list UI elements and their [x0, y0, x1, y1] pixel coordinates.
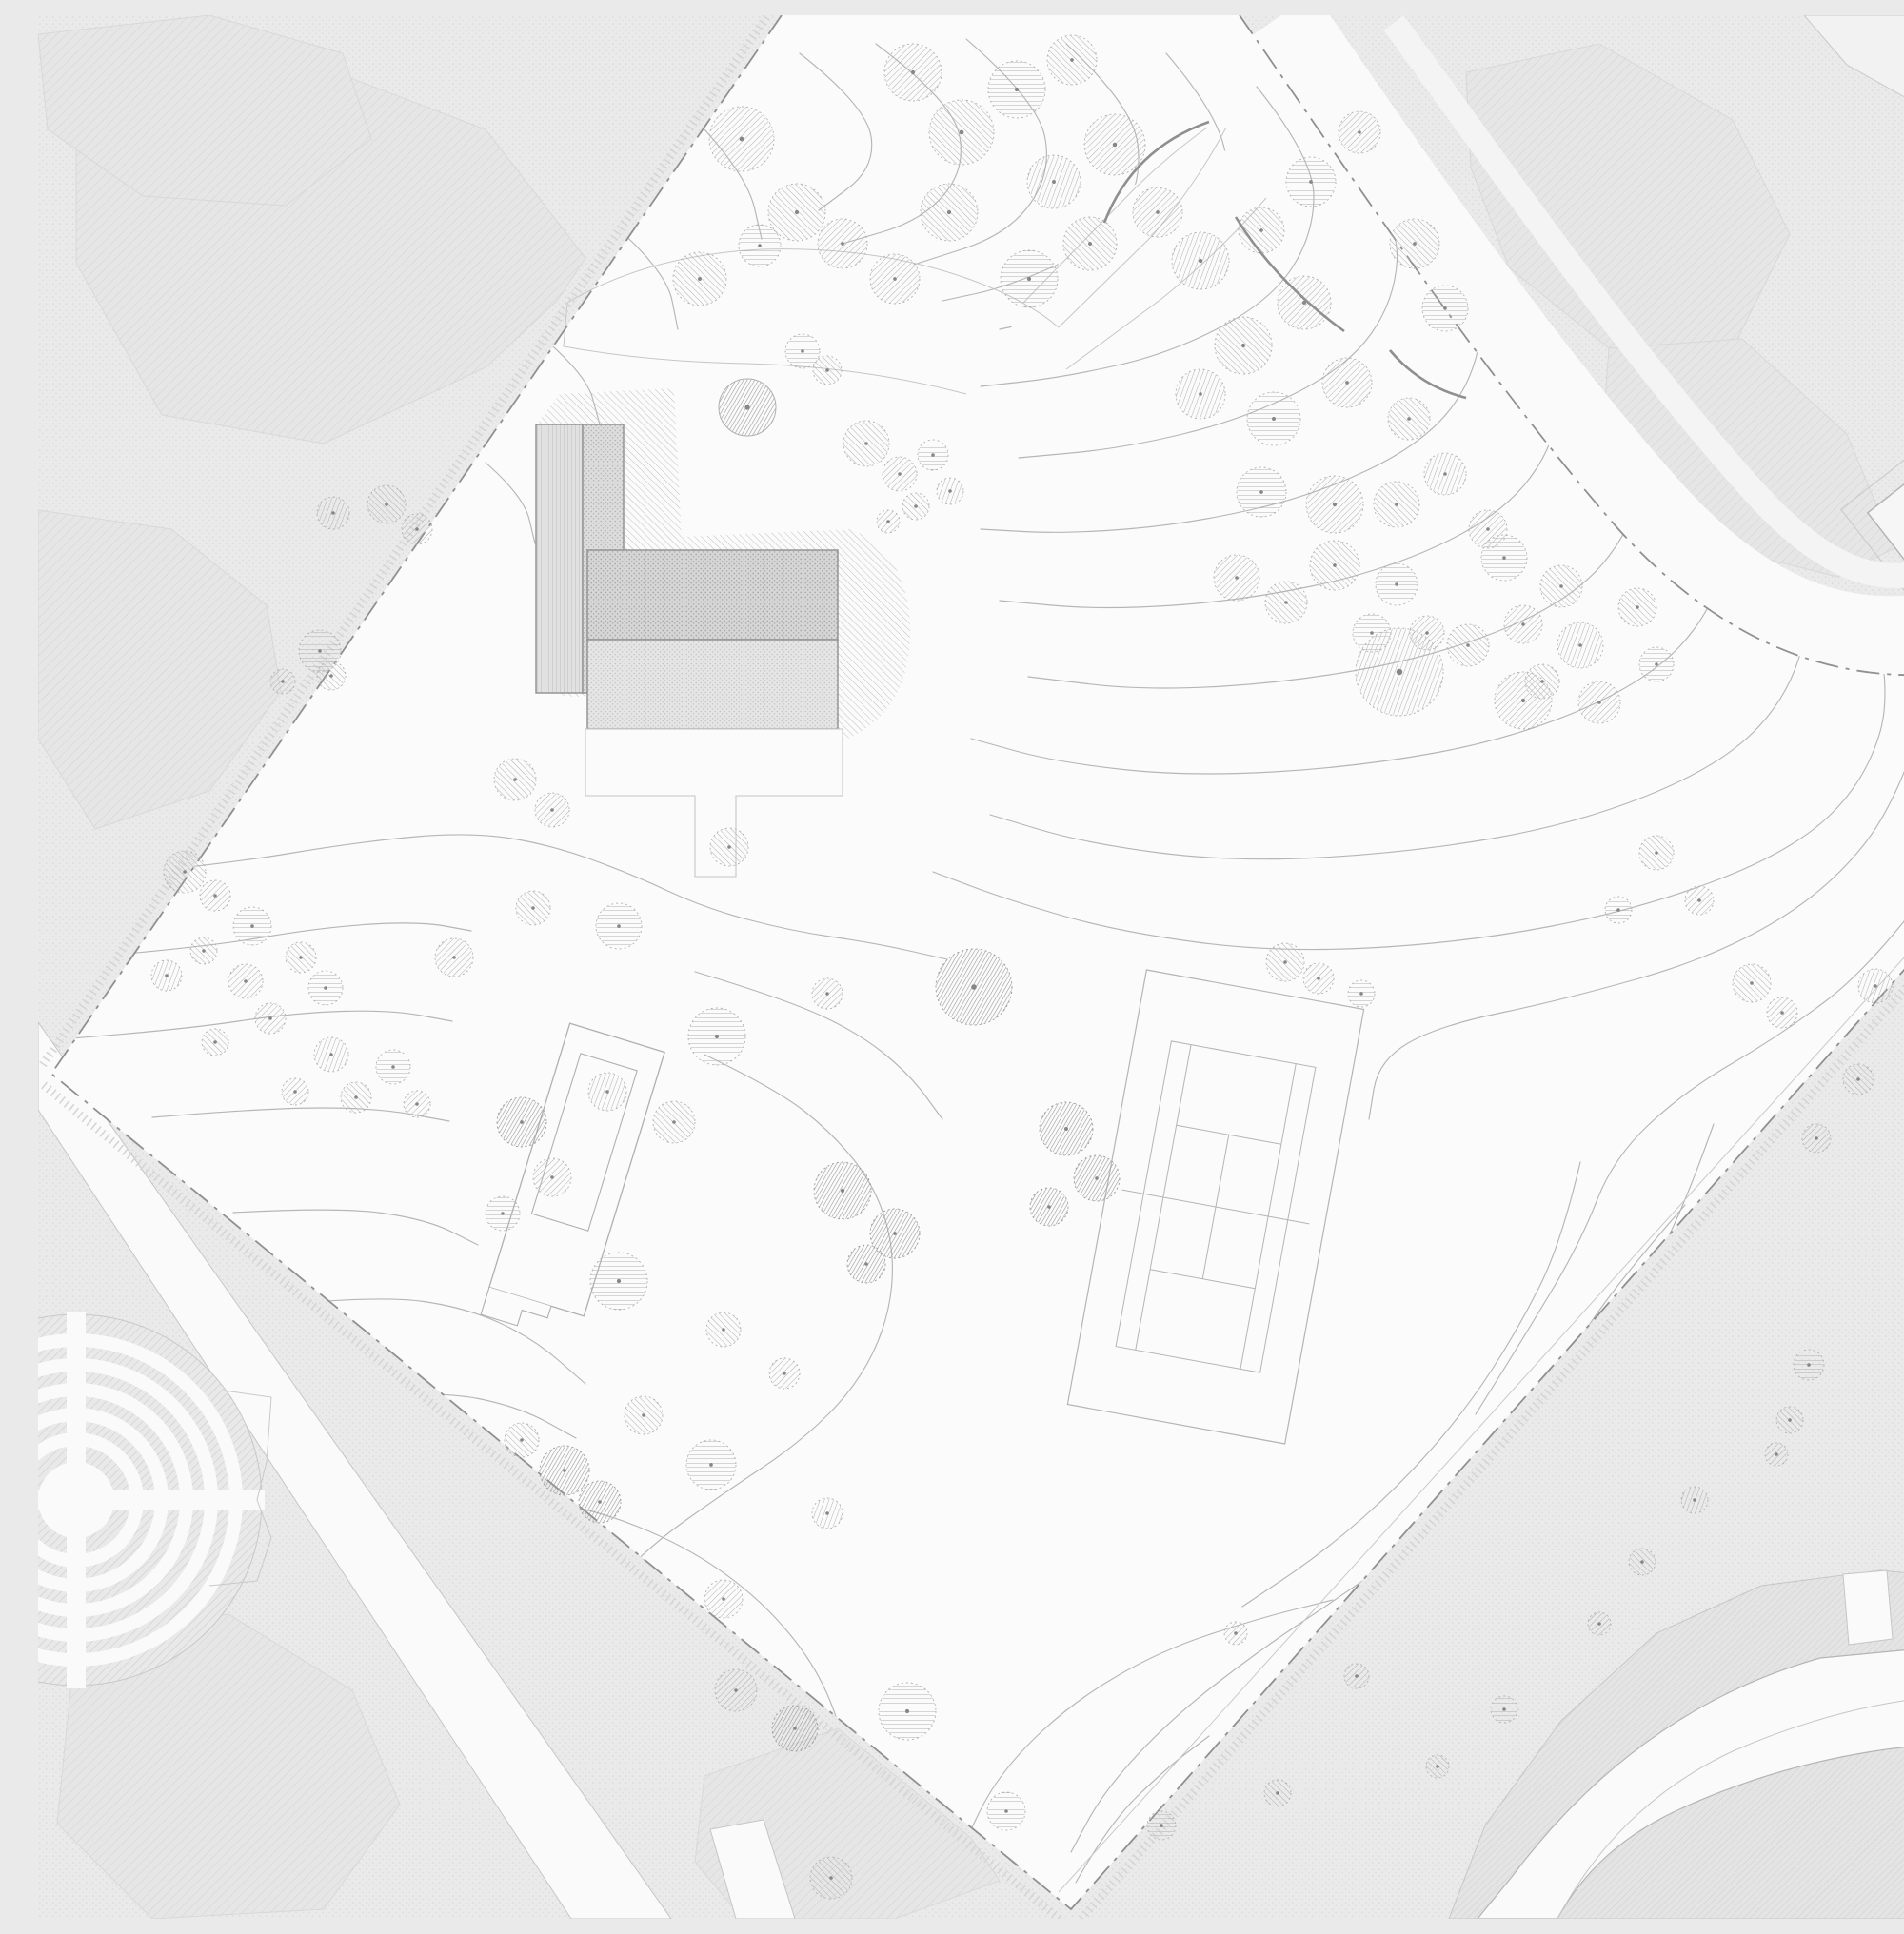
tree-trunk-dot	[165, 974, 169, 977]
tree	[588, 1073, 626, 1111]
tree	[739, 225, 781, 266]
tree-trunk-dot	[550, 808, 554, 812]
tree	[1685, 886, 1714, 915]
tree-trunk-dot	[1276, 1791, 1279, 1795]
tree-trunk-dot	[1425, 631, 1429, 635]
tree-trunk-dot	[452, 956, 456, 959]
tree-trunk-dot	[1333, 563, 1337, 567]
tree	[918, 440, 948, 470]
tree-trunk-dot	[1655, 662, 1658, 666]
tree	[505, 1423, 539, 1457]
tree-trunk-dot	[513, 778, 517, 781]
tree-trunk-dot	[864, 442, 868, 445]
tree-trunk-dot	[1004, 1809, 1008, 1813]
tree	[1858, 969, 1893, 1003]
tree	[1030, 1188, 1068, 1226]
tree-trunk-dot	[886, 520, 890, 523]
tree-trunk-dot	[1333, 503, 1337, 506]
tree-trunk-dot	[1358, 130, 1361, 134]
tree-trunk-dot	[1788, 1418, 1792, 1422]
tree-trunk-dot	[722, 1597, 725, 1601]
tree-trunk-dot	[1436, 1765, 1439, 1768]
tree-trunk-dot	[1015, 88, 1019, 91]
tree	[535, 793, 569, 827]
tree	[812, 1498, 843, 1529]
tree-trunk-dot	[293, 1090, 297, 1094]
tree-trunk-dot	[501, 1212, 505, 1215]
tree-trunk-dot	[520, 1438, 524, 1442]
tree	[1802, 1124, 1831, 1153]
tree-trunk-dot	[801, 349, 804, 353]
tree-trunk-dot	[1345, 381, 1349, 385]
tree-trunk-dot	[722, 1328, 725, 1332]
tree	[785, 334, 820, 368]
tree	[1047, 35, 1097, 85]
tree-trunk-dot	[1597, 1622, 1601, 1626]
tree-trunk-dot	[905, 1709, 909, 1713]
tree-trunk-dot	[1309, 180, 1313, 184]
tree	[579, 1481, 621, 1523]
tree	[813, 356, 842, 385]
tree	[317, 661, 346, 690]
tree	[1767, 997, 1797, 1028]
tree	[1639, 836, 1674, 870]
tree-trunk-dot	[213, 894, 217, 898]
tree-trunk-dot	[1027, 277, 1031, 281]
tree	[1376, 563, 1418, 605]
tree-trunk-dot	[1395, 503, 1398, 506]
tree	[1540, 565, 1582, 607]
tree-trunk-dot	[244, 979, 248, 983]
tree	[164, 851, 206, 893]
tree-trunk-dot	[893, 277, 897, 281]
tree-trunk-dot	[213, 1040, 217, 1044]
tree-trunk-dot	[250, 924, 254, 928]
tree	[1133, 187, 1182, 237]
plaza-circle-tree-trunk-dot	[744, 405, 749, 409]
tree	[282, 1078, 308, 1105]
tree	[1629, 1549, 1656, 1575]
tree-trunk-dot	[1156, 210, 1160, 214]
tree-trunk-dot	[1234, 1631, 1238, 1635]
tree	[987, 1792, 1025, 1830]
tree	[1776, 1407, 1803, 1433]
tree-trunk-dot	[698, 277, 702, 281]
tree-trunk-dot	[1052, 180, 1056, 184]
tree	[929, 100, 994, 165]
tree-trunk-dot	[1064, 1127, 1068, 1131]
tree	[202, 1029, 228, 1056]
tree-trunk-dot	[1697, 898, 1701, 902]
tree-trunk-dot	[520, 1120, 524, 1124]
tree-trunk-dot	[1521, 699, 1525, 702]
tree-trunk-dot	[841, 242, 844, 246]
tree	[1264, 1780, 1291, 1806]
tree-trunk-dot	[1502, 556, 1506, 560]
tree	[902, 493, 929, 520]
tree-trunk-dot	[825, 368, 829, 372]
tree-trunk-dot	[563, 1469, 566, 1472]
tree	[673, 252, 726, 306]
tree-trunk-dot	[1088, 242, 1092, 246]
tree	[937, 478, 963, 504]
tree	[1084, 114, 1145, 175]
tree-trunk-dot	[727, 845, 731, 849]
tree-trunk-dot	[931, 453, 935, 457]
tree-trunk-dot	[829, 1876, 833, 1880]
tree-trunk-dot	[354, 1095, 358, 1099]
tree-trunk-dot	[1597, 701, 1601, 704]
site-plan-figure	[38, 15, 1904, 1919]
tree	[486, 1196, 520, 1231]
tree	[1424, 453, 1466, 495]
tree-trunk-dot	[971, 984, 977, 990]
tree-trunk-dot	[1235, 576, 1239, 580]
building-wing-wide-upper	[587, 550, 838, 640]
tree-trunk-dot	[329, 674, 333, 678]
tree	[1618, 588, 1656, 626]
tree-trunk-dot	[1443, 306, 1447, 310]
tree-trunk-dot	[1413, 242, 1417, 246]
tree-trunk-dot	[1466, 643, 1470, 647]
tree-trunk-dot	[617, 1279, 621, 1283]
tree-trunk-dot	[672, 1120, 676, 1124]
tree-trunk-dot	[324, 986, 327, 990]
site-plan-canvas	[38, 15, 1904, 1919]
tree-trunk-dot	[1370, 631, 1374, 635]
tree-trunk-dot	[642, 1413, 645, 1417]
tree-trunk-dot	[1655, 851, 1658, 855]
tree	[1388, 398, 1430, 440]
tree-trunk-dot	[1407, 417, 1411, 421]
tree	[533, 1158, 571, 1196]
tree	[1310, 541, 1359, 590]
tree	[1344, 1664, 1369, 1688]
tree	[704, 1580, 743, 1618]
tree	[1215, 317, 1272, 374]
tree	[228, 964, 263, 998]
fan-entry	[1843, 1570, 1893, 1645]
tree	[686, 1440, 736, 1490]
tree	[818, 219, 867, 268]
tree-trunk-dot	[1359, 992, 1363, 996]
tree	[710, 828, 748, 866]
tree	[1074, 1155, 1120, 1201]
labyrinth-cross-vertical	[67, 1312, 86, 1688]
tree-trunk-dot	[1807, 1363, 1811, 1367]
tree	[1306, 476, 1363, 533]
tree-trunk-dot	[1578, 643, 1582, 647]
tree	[270, 669, 295, 694]
tree-trunk-dot	[318, 649, 322, 653]
tree-trunk-dot	[825, 1511, 829, 1515]
tree-trunk-dot	[758, 244, 762, 247]
tree-trunk-dot	[1640, 1560, 1644, 1564]
tree-trunk-dot	[825, 992, 829, 996]
tree	[1681, 1487, 1708, 1513]
tree	[341, 1082, 371, 1113]
tree-trunk-dot	[1047, 1205, 1051, 1209]
tree	[286, 942, 316, 973]
tree-trunk-dot	[617, 924, 621, 928]
tree-trunk-dot	[948, 489, 952, 493]
tree-trunk-dot	[1443, 472, 1447, 476]
tree	[1266, 943, 1304, 981]
tree	[1172, 232, 1229, 289]
tree-trunk-dot	[1856, 1077, 1860, 1081]
tree	[1733, 964, 1771, 1002]
tree	[404, 1091, 430, 1117]
tree	[1278, 276, 1331, 329]
tree-trunk-dot	[415, 527, 419, 531]
tree	[1588, 1612, 1611, 1635]
tree	[1348, 980, 1375, 1007]
tree	[768, 184, 825, 241]
tree	[988, 61, 1045, 118]
tree-trunk-dot	[1241, 344, 1245, 347]
tree-trunk-dot	[1815, 1136, 1818, 1140]
tree	[1176, 369, 1225, 419]
tree-trunk-dot	[550, 1175, 554, 1179]
tree	[1286, 157, 1336, 207]
tree	[151, 960, 182, 991]
tree-trunk-dot	[1272, 417, 1276, 421]
tree	[255, 1003, 286, 1034]
tree-trunk-dot	[1160, 1824, 1163, 1827]
tree-trunk-dot	[1259, 228, 1263, 232]
tree-trunk-dot	[183, 870, 187, 874]
tree	[1063, 217, 1117, 270]
building-wing-wide-lower	[587, 640, 838, 729]
tree	[497, 1097, 546, 1147]
tree-trunk-dot	[531, 906, 535, 910]
tree-trunk-dot	[1502, 1707, 1506, 1711]
tree-trunk-dot	[415, 1102, 419, 1106]
tree	[540, 1446, 589, 1495]
tree	[625, 1396, 663, 1434]
tree	[1265, 582, 1307, 623]
tree-trunk-dot	[793, 1727, 797, 1730]
tree-trunk-dot	[795, 210, 799, 214]
tree	[1247, 392, 1300, 445]
tree	[1027, 155, 1081, 208]
tree	[1224, 1622, 1247, 1645]
tree-trunk-dot	[281, 680, 285, 683]
tree-trunk-dot	[1355, 1674, 1359, 1678]
tree	[883, 457, 917, 491]
tree	[233, 907, 271, 945]
tree	[1147, 1811, 1176, 1840]
tree-trunk-dot	[331, 511, 335, 515]
tree-trunk-dot	[709, 1463, 713, 1467]
tree	[1040, 1102, 1093, 1155]
tree	[709, 107, 774, 171]
tree-trunk-dot	[898, 472, 902, 476]
tree	[308, 971, 343, 1005]
tree	[1557, 622, 1603, 668]
tree	[376, 1050, 410, 1084]
tree	[367, 485, 406, 523]
tree-trunk-dot	[740, 137, 744, 142]
tree-trunk-dot	[1750, 981, 1754, 985]
tree-trunk-dot	[841, 1189, 844, 1193]
tree-trunk-dot	[1540, 680, 1544, 683]
tree	[402, 514, 432, 544]
tree	[1447, 624, 1489, 666]
tree-trunk-dot	[947, 210, 951, 214]
tree	[1525, 664, 1559, 699]
building-wing-tall-left	[536, 424, 583, 693]
tree	[1339, 111, 1380, 153]
tree	[596, 903, 642, 949]
tree	[706, 1312, 741, 1347]
tree	[1843, 1064, 1874, 1095]
tree	[810, 1857, 852, 1899]
tree	[1390, 219, 1439, 268]
tree	[1001, 250, 1058, 307]
tree-trunk-dot	[1874, 984, 1877, 988]
tree-trunk-dot	[1113, 143, 1117, 147]
tree	[936, 949, 1012, 1025]
tree-trunk-dot	[715, 1035, 719, 1038]
tree-trunk-dot	[385, 503, 388, 506]
tree-trunk-dot	[1283, 960, 1287, 964]
tree	[812, 978, 843, 1009]
tree	[1426, 1755, 1449, 1778]
tree	[317, 497, 349, 529]
tree-trunk-dot	[1397, 669, 1402, 675]
tree-trunk-dot	[605, 1090, 609, 1094]
tree-trunk-dot	[1199, 259, 1202, 263]
tree-trunk-dot	[391, 1065, 395, 1069]
tree	[1374, 482, 1419, 527]
tree-trunk-dot	[864, 1262, 868, 1266]
tree-trunk-dot	[1070, 58, 1074, 62]
tree-trunk-dot	[960, 130, 964, 135]
tree-trunk-dot	[1395, 582, 1398, 586]
tree-trunk-dot	[1095, 1176, 1099, 1180]
tree-trunk-dot	[893, 1232, 897, 1235]
tree-trunk-dot	[598, 1500, 602, 1504]
tree	[1214, 555, 1259, 601]
tree	[715, 1669, 757, 1711]
tree	[1491, 1696, 1517, 1723]
tree-trunk-dot	[1317, 977, 1320, 980]
tree	[769, 1358, 800, 1389]
tree-trunk-dot	[1636, 605, 1639, 609]
tree	[190, 937, 217, 964]
tree	[814, 1162, 871, 1219]
tree-trunk-dot	[1775, 1452, 1778, 1456]
tree	[435, 938, 473, 977]
tree	[494, 759, 536, 800]
tree-trunk-dot	[1559, 584, 1563, 588]
tree	[1356, 628, 1443, 716]
tree-trunk-dot	[734, 1688, 738, 1692]
tree	[1237, 467, 1286, 517]
tree-trunk-dot	[1284, 601, 1288, 604]
tree	[516, 891, 550, 925]
tree-trunk-dot	[1521, 622, 1525, 626]
tree	[1322, 358, 1372, 407]
tree	[1765, 1443, 1788, 1466]
tree-trunk-dot	[202, 949, 206, 953]
tree	[884, 44, 942, 101]
tree	[314, 1037, 348, 1072]
tree	[688, 1008, 745, 1065]
tree-trunk-dot	[299, 956, 303, 959]
tree	[1303, 963, 1334, 994]
tree	[1422, 286, 1468, 331]
tree	[590, 1253, 647, 1310]
tree	[870, 254, 920, 304]
tree	[1794, 1350, 1824, 1380]
tree	[1504, 605, 1542, 643]
tree	[843, 421, 889, 466]
tree-trunk-dot	[783, 1372, 786, 1375]
tree-trunk-dot	[1259, 490, 1263, 494]
tree	[877, 510, 900, 533]
tree-trunk-dot	[911, 70, 915, 74]
tree	[772, 1706, 818, 1751]
tree	[879, 1683, 936, 1740]
tree-trunk-dot	[1780, 1011, 1784, 1015]
tree	[1578, 681, 1620, 723]
tree-trunk-dot	[914, 504, 918, 508]
tree-trunk-dot	[268, 1016, 272, 1020]
tree-trunk-dot	[1616, 908, 1620, 912]
tree	[653, 1101, 695, 1143]
tree	[847, 1245, 885, 1283]
tree	[1605, 897, 1632, 923]
tree	[921, 184, 978, 241]
tree	[200, 880, 230, 911]
tree-trunk-dot	[1199, 392, 1202, 396]
tree	[1481, 535, 1527, 581]
tree-trunk-dot	[329, 1053, 333, 1056]
tree-trunk-dot	[1693, 1498, 1696, 1502]
tree-trunk-dot	[1486, 527, 1490, 531]
tree	[1639, 647, 1674, 681]
